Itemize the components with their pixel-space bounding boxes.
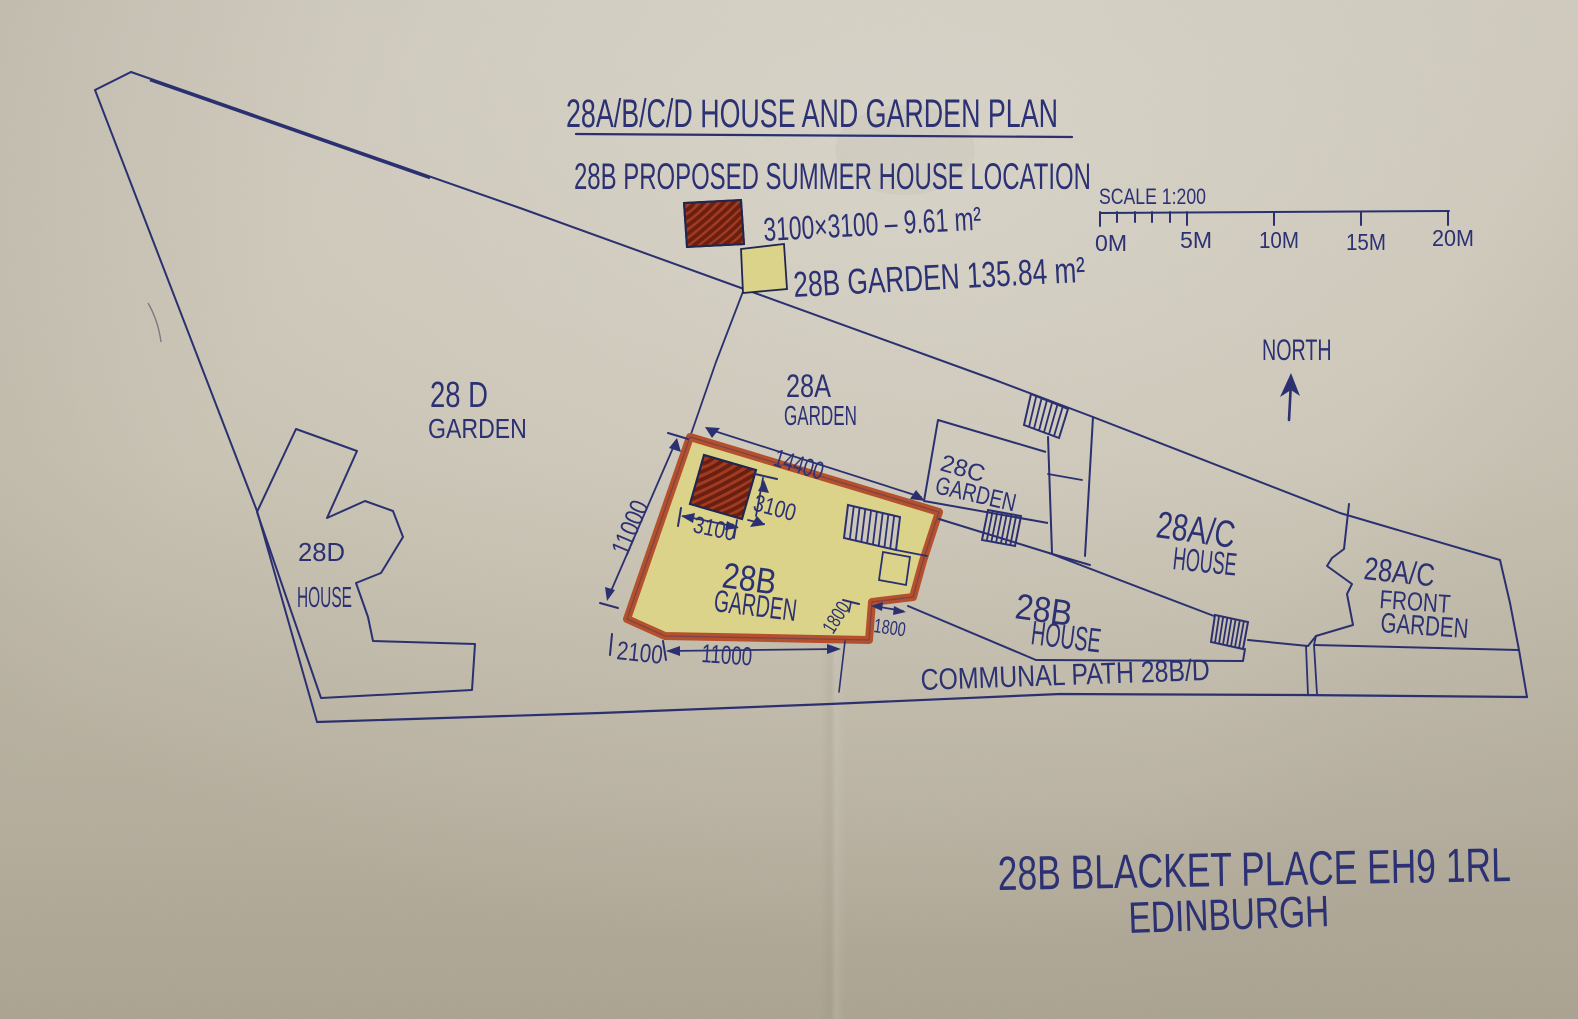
svg-text:15M: 15M <box>1346 229 1386 255</box>
svg-text:HOUSE: HOUSE <box>297 581 352 613</box>
svg-text:28A/B/C/D HOUSE AND GARDEN PLA: 28A/B/C/D HOUSE AND GARDEN PLAN <box>566 92 1058 137</box>
svg-text:GARDEN: GARDEN <box>784 400 857 431</box>
svg-text:GARDEN: GARDEN <box>1380 608 1470 645</box>
svg-text:20M: 20M <box>1432 225 1474 251</box>
svg-text:2100: 2100 <box>615 636 664 669</box>
svg-text:EDINBURGH: EDINBURGH <box>1128 888 1330 943</box>
svg-text:5M: 5M <box>1180 227 1212 253</box>
svg-text:GARDEN: GARDEN <box>428 414 527 445</box>
svg-text:28B PROPOSED SUMMER HOUSE LOCA: 28B PROPOSED SUMMER HOUSE LOCATION <box>574 156 1091 198</box>
svg-text:11000: 11000 <box>701 639 753 671</box>
svg-text:SCALE 1:200: SCALE 1:200 <box>1099 185 1206 209</box>
svg-text:1800: 1800 <box>872 614 907 641</box>
svg-text:NORTH: NORTH <box>1262 334 1332 367</box>
svg-text:0M: 0M <box>1095 230 1127 256</box>
svg-text:28D: 28D <box>298 539 345 567</box>
svg-text:28 D: 28 D <box>430 374 488 414</box>
svg-text:10M: 10M <box>1259 227 1299 253</box>
svg-text:HOUSE: HOUSE <box>1171 542 1238 583</box>
